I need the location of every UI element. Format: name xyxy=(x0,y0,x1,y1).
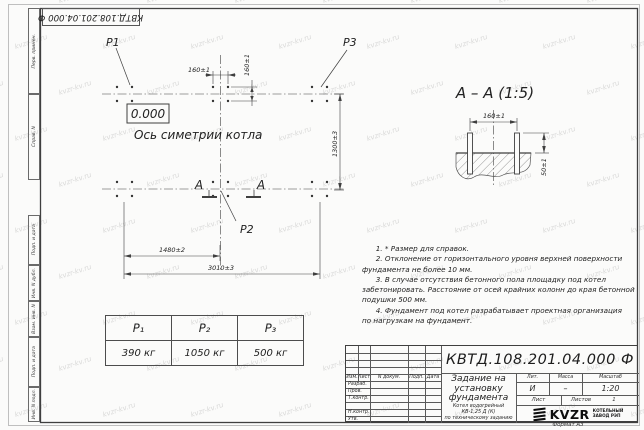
dim-row-spacing: 1300±3 xyxy=(331,131,339,157)
kvzr-spring-icon xyxy=(532,407,547,421)
centerlines xyxy=(102,55,344,272)
sheets-label: Листов xyxy=(564,395,598,405)
scale-value: 1:20 xyxy=(582,382,639,395)
technical-notes: 1. * Размер для справок. 2. Отклонение о… xyxy=(362,244,642,326)
load-header-p3: P₃ xyxy=(238,316,304,341)
margin-cell-sprav-n: Справ. N xyxy=(28,94,40,180)
mass-header: Масса xyxy=(549,373,582,382)
note-line: фундамента не более 10 мм. xyxy=(362,265,642,275)
lit-header: Лит. xyxy=(516,373,549,382)
col-ndokum: N докум. xyxy=(370,374,408,381)
section-cut-marks xyxy=(202,190,261,197)
row-nkontr: Н.контр. xyxy=(346,409,372,416)
section-letter-right: А xyxy=(256,178,265,192)
scale-header: Масштаб xyxy=(582,373,639,382)
col-list: Лист xyxy=(358,374,370,381)
product-description: Котел водогрейный КВ-1,25 Д (К) по техни… xyxy=(441,404,516,421)
drawing-sheet: kvzr-kv.rukvzr-kv.rukvzr-kv.rukvzr-kv.ru… xyxy=(0,0,644,430)
load-header-p2: P₂ xyxy=(172,316,238,341)
note-line: 3. В случае отсутствия бетонного пола пл… xyxy=(362,275,642,285)
load-value-p3: 500 кг xyxy=(238,341,304,366)
margin-cell-inv-dubl: Инв. N дубл. xyxy=(28,265,40,301)
section-view: А – А (1:5) 160±1 50±1 xyxy=(455,84,549,186)
col-data: Дата xyxy=(425,374,441,381)
plan-view xyxy=(102,48,347,279)
dim-left-to-axis: 1480±2 xyxy=(159,246,185,254)
dim-bolt-protrusion: 50±1 xyxy=(540,158,548,176)
section-dimension-arrows xyxy=(470,120,546,153)
load-label-p3: P3 xyxy=(343,36,357,49)
note-line: забетонировать. Расстояние от осей крайн… xyxy=(362,285,642,295)
anchor-bolt-right xyxy=(515,133,520,174)
load-header-p1: P₁ xyxy=(106,316,172,341)
margin-cell-vzam-inv: Взам. инв. N xyxy=(28,301,40,337)
anchor-bolt-left xyxy=(468,133,473,174)
note-line: по нагрузкам на фундамент. xyxy=(362,316,642,326)
elevation-value: 0.000 xyxy=(131,107,166,121)
dim-bolt-spacing-x: 160±1 xyxy=(188,66,210,74)
section-letter-left: А xyxy=(194,178,203,192)
load-value-p1: 390 кг xyxy=(106,341,172,366)
company-logo-text: KVZR xyxy=(550,407,590,422)
sheet-label: Лист xyxy=(516,395,561,405)
loads-table: P₁ P₂ P₃ 390 кг 1050 кг 500 кг xyxy=(105,315,304,366)
corner-designation-stamp: КВТД.108.201.04.000 Ф xyxy=(42,8,140,26)
note-line: подушки 500 мм. xyxy=(362,295,642,305)
row-tkontr: Т.контр. xyxy=(346,395,372,402)
loads-table-value-row: 390 кг 1050 кг 500 кг xyxy=(106,341,304,366)
note-line: 4. Фундамент под котел разрабатывает про… xyxy=(362,306,642,316)
sheets-value: 1 xyxy=(604,395,624,405)
format-label: Формат А3 xyxy=(540,422,596,428)
company-name: КОТЕЛЬНЫЙ ЗАВОД РЭП xyxy=(593,409,624,419)
dim-overall: 3010±3 xyxy=(208,264,234,272)
margin-cell-inv-podl: Инв. N подл. xyxy=(28,387,40,422)
section-dimension-lines xyxy=(470,118,549,153)
load-label-p1: P1 xyxy=(106,36,120,49)
note-line: 1. * Размер для справок. xyxy=(362,244,642,254)
row-razrab: Разраб. xyxy=(346,381,372,388)
row-prov: Пров. xyxy=(346,388,372,395)
row-utv: Утв. xyxy=(346,416,372,423)
document-title: Задание на установку фундамента xyxy=(441,375,516,404)
load-value-p2: 1050 кг xyxy=(172,341,238,366)
dim-section-bolt-spacing: 160±1 xyxy=(483,112,505,120)
margin-cell-podp-data-2: Подп. и дата xyxy=(28,337,40,387)
col-podp: Подп. xyxy=(408,374,425,381)
note-line: 2. Отклонение от горизонтального уровня … xyxy=(362,254,642,264)
company-block: KVZR КОТЕЛЬНЫЙ ЗАВОД РЭП xyxy=(516,405,639,423)
dimension-lines xyxy=(124,71,344,279)
col-izm: Изм. xyxy=(346,374,358,381)
dim-bolt-spacing-y: 160±1 xyxy=(243,54,251,76)
title-block: Изм. Лист N докум. Подп. Дата Разраб. Пр… xyxy=(345,345,638,422)
load-label-p2: P2 xyxy=(240,223,254,236)
mass-value: – xyxy=(549,382,582,395)
section-title: А – А (1:5) xyxy=(455,84,534,102)
margin-cell-podp-data-1: Подп. и дата xyxy=(28,215,40,265)
document-designation: КВТД.108.201.04.000 Ф xyxy=(441,346,639,373)
lit-value: И xyxy=(516,382,549,395)
boiler-axis-label: Ось симетрии котла xyxy=(134,128,262,142)
loads-table-header-row: P₁ P₂ P₃ xyxy=(106,316,304,341)
